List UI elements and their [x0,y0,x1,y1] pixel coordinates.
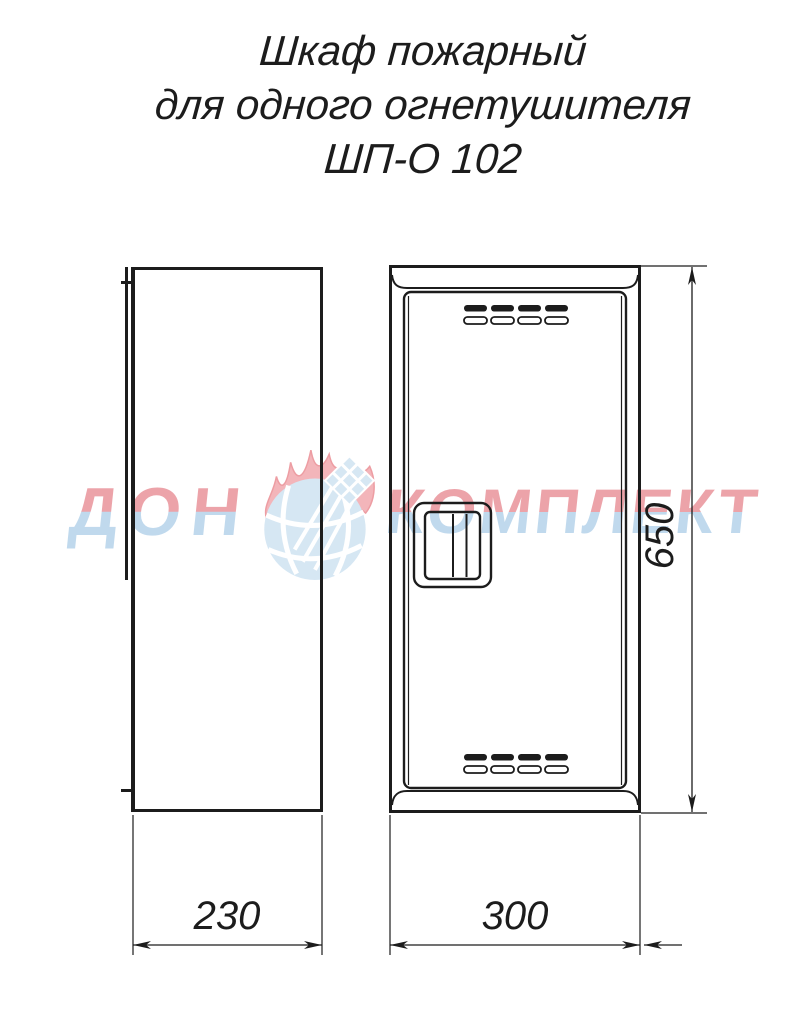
drawing-page: Шкаф пожарный для одного огнетушителя ШП… [0,0,797,1017]
drawing-title: Шкаф пожарный для одного огнетушителя ШП… [155,24,691,186]
top-vents [464,305,568,324]
dim-front-width-label: 300 [482,894,549,938]
title-line-3: ШП-О 102 [153,132,693,186]
side-door-tick-bottom [121,789,131,792]
dim-side-width-label: 230 [193,894,261,938]
title-line-1: Шкаф пожарный [153,24,693,78]
top-cap-line [392,275,638,288]
side-door-tick-top [121,281,131,284]
dimension-height: 650 [635,258,715,820]
dimension-side-width: 230 [115,815,340,965]
bottom-vents [464,754,568,773]
door-panel [404,292,626,788]
front-view [389,265,641,813]
dim-height-label: 650 [638,503,682,570]
door-handle [414,503,491,587]
side-view-door-seam [125,267,128,580]
front-view-outline [391,267,640,812]
dimension-front-width: 300 [380,815,700,965]
side-view [131,267,323,812]
title-line-2: для одного огнетушителя [153,78,693,132]
bottom-cap-line [392,791,638,805]
